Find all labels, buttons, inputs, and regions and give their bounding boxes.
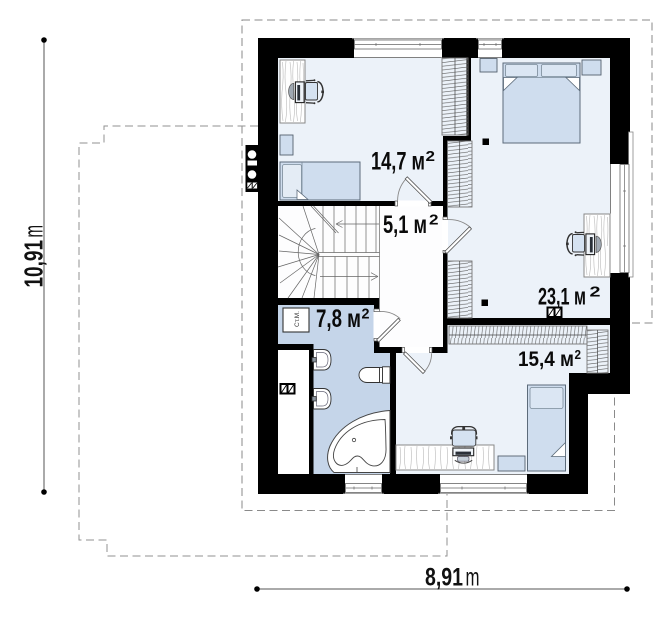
svg-text:5,1 м: 5,1 м xyxy=(383,211,427,239)
svg-text:Ст.М.: Ст.М. xyxy=(294,311,301,327)
svg-text:2: 2 xyxy=(362,307,370,323)
svg-text:2: 2 xyxy=(426,148,436,165)
svg-text:2: 2 xyxy=(590,285,601,301)
svg-text:14,7 м: 14,7 м xyxy=(371,148,425,176)
svg-text:m: m xyxy=(21,225,49,238)
svg-text:23,1 м: 23,1 м xyxy=(538,284,586,311)
svg-text:7,8 м: 7,8 м xyxy=(316,305,361,333)
svg-text:10,91: 10,91 xyxy=(21,240,49,288)
svg-text:m: m xyxy=(466,564,480,592)
svg-text:2: 2 xyxy=(575,347,582,362)
svg-text:2: 2 xyxy=(429,212,439,229)
svg-text:8,91: 8,91 xyxy=(425,564,463,592)
svg-text:15,4 м: 15,4 м xyxy=(518,348,574,371)
